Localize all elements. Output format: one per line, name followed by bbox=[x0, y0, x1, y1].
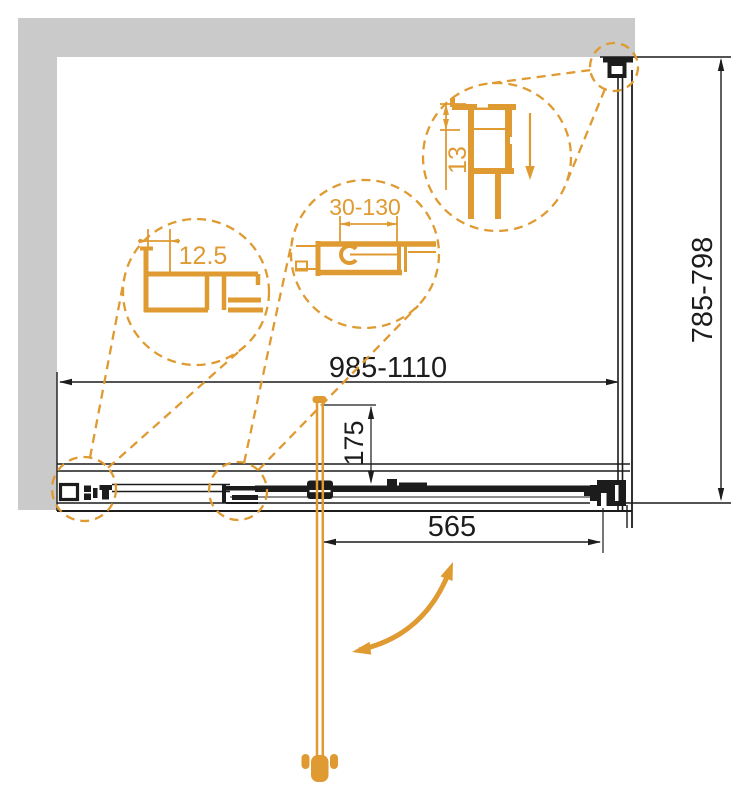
rail-hardware bbox=[61, 479, 627, 506]
arrowhead-icon bbox=[170, 239, 179, 244]
door-swing-arrow-icon bbox=[352, 562, 453, 655]
arrowhead-icon bbox=[340, 221, 350, 226]
dim-side-panel-label: 785-798 bbox=[687, 237, 719, 343]
bracket-flange bbox=[603, 57, 633, 63]
arrowhead-right-icon bbox=[588, 539, 601, 545]
detail-right-label: 13 bbox=[444, 146, 472, 174]
arrowhead-left-icon bbox=[323, 539, 336, 545]
arrowhead-down-icon bbox=[368, 471, 374, 484]
technical-drawing-canvas: 985-1110 785-798 565 175 bbox=[0, 0, 749, 800]
dim-handle: 175 bbox=[322, 405, 376, 484]
dim-door-width: 985-1110 bbox=[59, 352, 619, 385]
arrowhead-down-icon bbox=[718, 488, 724, 501]
door-roller bbox=[307, 481, 333, 500]
walls bbox=[18, 18, 635, 510]
profile-notch bbox=[477, 103, 488, 108]
arrowhead-icon bbox=[443, 119, 449, 130]
detail-center-label: 30-130 bbox=[329, 194, 401, 220]
door-pivot-foot bbox=[302, 754, 339, 782]
detail-left-label: 12.5 bbox=[179, 242, 228, 270]
wall-left bbox=[18, 18, 57, 510]
left-wall-profile bbox=[61, 485, 113, 501]
panel-connector bbox=[222, 484, 258, 503]
leader-line bbox=[90, 278, 124, 457]
wall-top bbox=[18, 18, 635, 57]
leader-line bbox=[566, 89, 605, 185]
dim-handle-label: 175 bbox=[339, 420, 369, 465]
detail-left-content: 12.5 bbox=[138, 229, 263, 312]
wall-bracket-top bbox=[603, 57, 633, 76]
detail-right-content: 13 bbox=[440, 98, 535, 219]
side-panel bbox=[618, 70, 632, 528]
arrowhead-right-icon bbox=[606, 379, 619, 385]
dim-opening-label: 565 bbox=[428, 511, 476, 543]
leader-line bbox=[487, 70, 590, 84]
profile-notch bbox=[510, 137, 514, 144]
bottom-rail bbox=[57, 372, 731, 511]
leader-line bbox=[108, 347, 244, 468]
open-door bbox=[302, 396, 339, 782]
arrowhead-left-icon bbox=[59, 379, 72, 385]
dim-opening: 565 bbox=[323, 508, 603, 553]
insert-arrow-icon bbox=[525, 166, 535, 180]
arrowhead-icon bbox=[387, 221, 397, 226]
drawing-svg: 985-1110 785-798 565 175 bbox=[0, 0, 749, 800]
bracket-body bbox=[610, 64, 625, 76]
dim-side-panel: 785-798 bbox=[600, 57, 731, 501]
detail-center-content: 30-130 bbox=[296, 194, 436, 276]
corner-bracket bbox=[584, 480, 626, 506]
arrowhead-up-icon bbox=[718, 58, 724, 71]
arrowhead-up-icon bbox=[368, 406, 374, 419]
